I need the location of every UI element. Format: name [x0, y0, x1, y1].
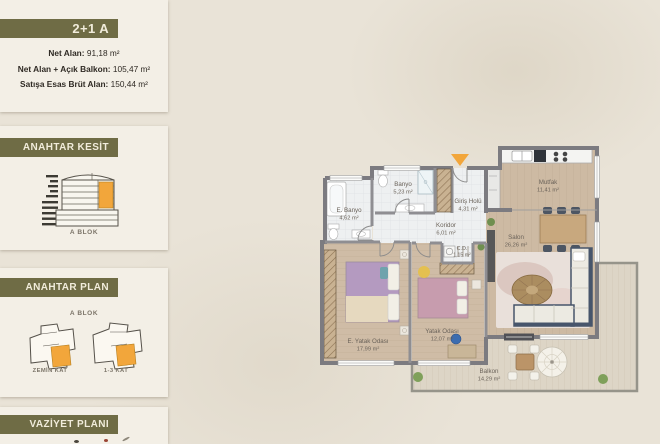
nightstand: [472, 280, 481, 289]
roof: [62, 175, 114, 180]
svg-text:Salon: Salon: [508, 234, 524, 241]
svg-text:1,15 m²: 1,15 m²: [453, 253, 471, 259]
shower: [418, 170, 433, 194]
stat-net-alan: Net Alan: 91,18 m²: [0, 46, 168, 62]
stat-value: 105,47 m²: [113, 64, 150, 74]
plan-block-label: A BLOK: [0, 310, 168, 317]
svg-text:5,23 m²: 5,23 m²: [393, 190, 412, 196]
dining-table: [540, 215, 586, 243]
svg-text:E. Banyo: E. Banyo: [336, 207, 362, 214]
vaziyet-plani-card: VAZİYET PLANI: [0, 407, 168, 444]
stat-value: 91,18 m²: [87, 48, 120, 58]
svg-text:Giriş Holü: Giriş Holü: [454, 198, 482, 205]
1-3-kat-caption: 1-3 KAT: [87, 368, 145, 374]
svg-text:Banyo: Banyo: [394, 181, 412, 188]
highlighted-unit-plan: [116, 344, 136, 366]
entrance-arrow-icon: [451, 154, 469, 166]
stat-value: 150,44 m²: [111, 79, 148, 89]
svg-text:E. Yatak Odası: E. Yatak Odası: [347, 338, 388, 345]
key-plan-zemin-kat: [22, 320, 80, 372]
plant: [478, 244, 485, 251]
single-bed: [418, 278, 468, 318]
stat-label: Net Alan + Açık Balkon:: [18, 64, 111, 74]
brochure-page: 2+1 A Net Alan: 91,18 m² Net Alan + Açık…: [0, 0, 660, 444]
building-section-diagram: [34, 170, 134, 228]
svg-text:Mutfak: Mutfak: [539, 179, 558, 186]
svg-text:6,01 m²: 6,01 m²: [436, 231, 455, 237]
hall-closet: [437, 169, 451, 212]
base-floors: [56, 210, 118, 226]
highlighted-unit-section: [99, 182, 113, 208]
unit-stats: Net Alan: 91,18 m² Net Alan + Açık Balko…: [0, 46, 168, 93]
oven: [534, 150, 546, 162]
site-plan-sliver: [0, 438, 168, 444]
anahtar-plan-title: ANAHTAR PLAN: [0, 278, 118, 297]
wardrobe: [324, 250, 336, 358]
stat-label: Satışa Esas Brüt Alan:: [20, 79, 108, 89]
zemin-kat-caption: ZEMİN KAT: [21, 368, 79, 374]
floor-plan: Mutfak 11,41 m² Salon 26,26 m² Giriş Hol…: [300, 130, 660, 420]
key-plan-1-3-kat: [88, 320, 146, 372]
plant: [487, 218, 495, 226]
washbasin: [396, 204, 424, 212]
svg-text:17,99 m²: 17,99 m²: [357, 347, 380, 353]
anahtar-kesit-card: ANAHTAR KESİT A BLOK: [0, 126, 168, 250]
svg-text:Yatak Odası: Yatak Odası: [425, 328, 459, 335]
room-koridor-floor: [373, 213, 486, 243]
wardrobe: [440, 263, 474, 274]
coffee-table: [512, 275, 552, 305]
svg-text:11,41 m²: 11,41 m²: [537, 188, 559, 194]
anahtar-kesit-title: ANAHTAR KESİT: [0, 138, 118, 157]
tall-cabinet: [486, 168, 500, 210]
toilet: [378, 170, 388, 187]
toilet: [328, 224, 339, 240]
svg-text:12,07 m²: 12,07 m²: [431, 337, 454, 343]
anahtar-plan-card: ANAHTAR PLAN A BLOK ZEMİN KAT 1-3 KAT: [0, 268, 168, 397]
double-bed: [346, 262, 399, 322]
plant: [413, 372, 423, 382]
highlighted-unit-plan: [51, 345, 71, 367]
unit-title: 2+1 A: [0, 19, 118, 38]
media-console: [487, 230, 495, 282]
svg-text:C.D.: C.D.: [457, 246, 468, 252]
outdoor-table: [516, 354, 534, 370]
umbrella: [537, 347, 567, 377]
pouf: [418, 266, 430, 278]
svg-text:14,29 m²: 14,29 m²: [478, 377, 501, 383]
stat-brut-alan: Satışa Esas Brüt Alan: 150,44 m²: [0, 77, 168, 93]
stat-net-alan-balkon: Net Alan + Açık Balkon: 105,47 m²: [0, 62, 168, 78]
svg-text:4,62 m²: 4,62 m²: [339, 216, 358, 222]
plant: [598, 374, 608, 384]
kesit-block-label: A BLOK: [0, 229, 168, 236]
throw-pillow: [573, 252, 585, 261]
unit-info-card: 2+1 A Net Alan: 91,18 m² Net Alan + Açık…: [0, 0, 168, 112]
svg-text:Koridor: Koridor: [436, 222, 456, 229]
svg-text:26,26 m²: 26,26 m²: [505, 243, 528, 249]
svg-text:4,31 m²: 4,31 m²: [458, 207, 477, 213]
stat-label: Net Alan:: [48, 48, 84, 58]
svg-text:Balkon: Balkon: [480, 368, 499, 375]
vaziyet-plani-title: VAZİYET PLANI: [0, 415, 118, 434]
